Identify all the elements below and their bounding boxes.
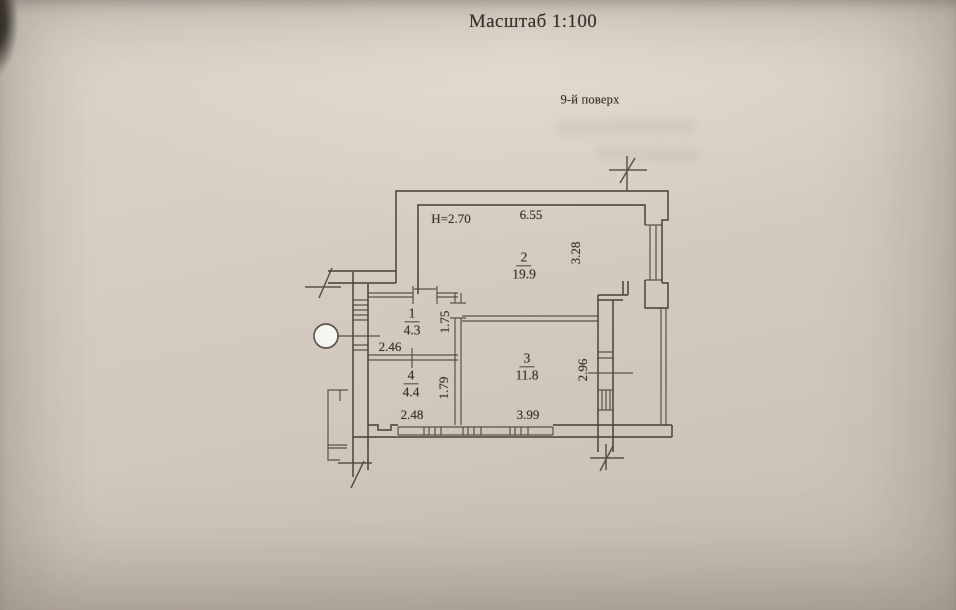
room1-area: 4.3 (404, 324, 421, 338)
room2-width-dim: 6.55 (520, 207, 543, 223)
room4-number: 4 (404, 368, 419, 384)
room4-width-dim: 2.48 (401, 407, 424, 423)
room3-label: 3 11.8 (515, 351, 538, 382)
entrance-marker (314, 324, 380, 348)
left-exterior-wall (353, 272, 368, 477)
room2-label: 2 19.9 (512, 250, 536, 281)
room3-width-dim: 3.99 (517, 407, 540, 423)
room1-number: 1 (405, 306, 420, 322)
floor-plan-photo: Масштаб 1:100 9-й поверх H=2.70 6.55 3.2… (0, 0, 956, 610)
bottom-wall-windows (353, 425, 672, 452)
balcony-railing (645, 280, 668, 425)
room1-label: 1 4.3 (404, 306, 421, 337)
room4-label: 4 4.4 (403, 368, 420, 399)
room1-width-dim: 2.46 (379, 339, 402, 355)
room2-area: 19.9 (512, 268, 536, 282)
room2-number: 2 (517, 250, 532, 266)
room2-depth-dim: 3.28 (568, 242, 584, 265)
ceiling-height-label: H=2.70 (431, 211, 470, 227)
floor-plan-linework (0, 0, 956, 610)
partition-room2-room3 (462, 316, 598, 321)
upper-left-wall-stub (328, 271, 396, 283)
room4-depth-dim: 1.79 (436, 377, 452, 400)
room3-number: 3 (520, 351, 535, 367)
room3-depth-dim: 2.96 (575, 359, 591, 382)
room3-area: 11.8 (515, 369, 538, 383)
room2-balcony-window (645, 225, 662, 280)
axis-bubble (314, 324, 338, 348)
left-shaft-outline (328, 390, 348, 460)
room4-area: 4.4 (403, 386, 420, 400)
scale-title: Масштаб 1:100 (469, 11, 597, 33)
balcony-wall (598, 281, 628, 437)
room1-depth-dim: 1.75 (437, 311, 453, 334)
floor-label: 9-й поверх (560, 93, 619, 108)
